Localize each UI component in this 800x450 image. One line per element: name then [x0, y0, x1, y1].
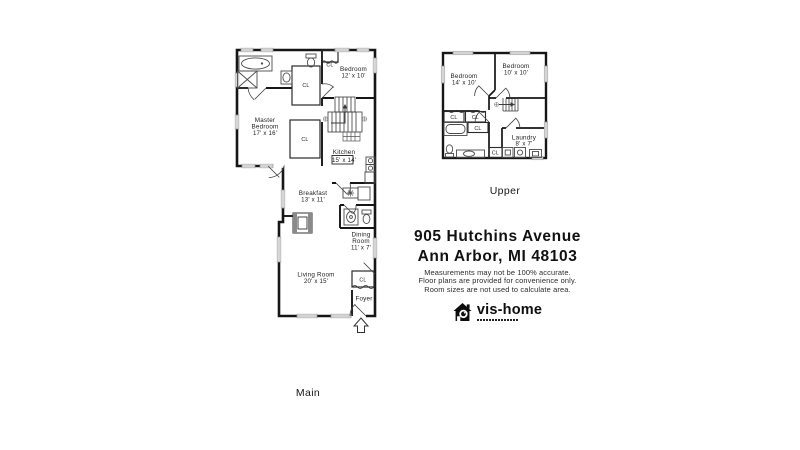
upper-room-labels: Bedroom 14' x 10' Bedroom 10' x 10' Laun… — [450, 63, 536, 156]
floor-plan-main: Master Bedroom 17' x 16' Bedroom 12' x 1… — [232, 44, 384, 336]
room-dims-master-bedroom: 17' x 16' — [253, 130, 277, 137]
shower-icon — [238, 71, 258, 88]
toilet-icon — [306, 54, 316, 67]
floor-plan-upper: Bedroom 14' x 10' Bedroom 10' x 10' Laun… — [440, 50, 552, 168]
toilet-icon — [446, 145, 454, 157]
closet-label: CL — [474, 126, 481, 132]
room-label-kitchen: Kitchen — [333, 149, 356, 156]
closet-label: CL — [326, 63, 333, 69]
half-bath — [344, 209, 371, 225]
room-dims-bedroom-left: 14' x 10' — [452, 80, 476, 87]
room-dims-bedroom: 12' x 10' — [341, 73, 365, 80]
address-line2: Ann Arbor, MI 48103 — [395, 247, 600, 267]
floorplan-page: Master Bedroom 17' x 16' Bedroom 12' x 1… — [0, 0, 800, 450]
logo-tagline — [477, 319, 519, 321]
sink-icon — [281, 71, 292, 84]
room-dims-breakfast: 13' x 11' — [301, 197, 325, 204]
stairs-main — [323, 97, 366, 141]
closet-label: CL — [492, 150, 499, 156]
washer-icon — [503, 148, 514, 158]
sink-icon — [344, 209, 358, 225]
disclaimer-line3: Room sizes are not used to calculate are… — [395, 286, 600, 294]
room-label-foyer: Foyer — [355, 296, 372, 303]
kitchen-counter — [365, 172, 375, 183]
sink-icon — [457, 150, 485, 158]
room-dims-bedroom-right: 10' x 10' — [504, 70, 528, 77]
closet-label: CL — [359, 278, 366, 284]
bathtub-icon — [444, 123, 467, 136]
entry-arrow-icon — [354, 318, 368, 333]
corner-counter — [358, 187, 370, 200]
stove-icon — [366, 157, 375, 172]
room-dims-kitchen: 15' x 14' — [332, 157, 356, 164]
house-camera-icon — [453, 302, 472, 322]
logo-text: vis-home — [477, 303, 542, 321]
bathtub-icon — [239, 56, 272, 71]
toilet-icon — [362, 210, 371, 224]
dryer-icon — [515, 148, 526, 158]
closet-label: CL — [302, 83, 309, 89]
room-dims-dining: 11' x 7' — [351, 245, 371, 252]
main-floor-drawing: Master Bedroom 17' x 16' Bedroom 12' x 1… — [232, 44, 384, 336]
closet-label: CL — [301, 137, 308, 143]
stairs-upper — [495, 98, 519, 111]
logo: vis-home — [395, 302, 600, 322]
address-block: 905 Hutchins Avenue Ann Arbor, MI 48103 — [395, 227, 600, 266]
closet-label: CL — [472, 115, 479, 121]
address-line1: 905 Hutchins Avenue — [395, 227, 600, 247]
laundry-fixtures — [503, 148, 542, 158]
room-dims-living: 20' x 15' — [304, 278, 328, 285]
floor-label-main: Main — [258, 387, 358, 399]
fireplace-icon — [293, 213, 312, 233]
logo-brand: vis-home — [477, 303, 542, 318]
closet-label: CL — [450, 115, 457, 121]
pantry-grid — [343, 132, 360, 141]
floor-label-upper: Upper — [450, 185, 560, 197]
upper-floor-drawing: Bedroom 14' x 10' Bedroom 10' x 10' Laun… — [440, 50, 552, 168]
room-dims-laundry: 8' x 7' — [516, 141, 533, 148]
disclaimer-block: Measurements may not be 100% accurate. F… — [395, 269, 600, 294]
